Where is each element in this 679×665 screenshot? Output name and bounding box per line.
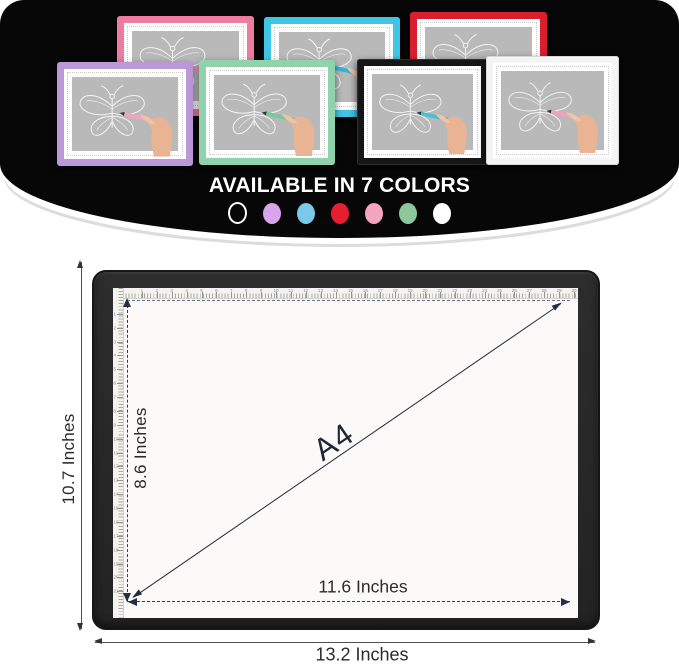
hand-with-pen-icon (544, 85, 606, 158)
light-pad-white (486, 56, 619, 165)
hand-with-pen-icon (414, 88, 475, 158)
pad-mat (206, 67, 328, 158)
pad-screen (501, 71, 604, 150)
pad-screen (214, 75, 320, 150)
hand-with-pen-icon (117, 90, 181, 159)
hero-banner: AVAILABLE IN 7 COLORS (0, 0, 679, 238)
color-swatch-green (399, 203, 417, 224)
color-swatch-purple (263, 203, 281, 224)
pad-mat (493, 63, 612, 158)
color-swatch-white (433, 203, 451, 224)
inner-height-label: 8.6 Inches (131, 407, 151, 488)
ruler-top: 1234567891011121314151617181920212223242… (113, 288, 578, 299)
color-swatches (0, 202, 679, 224)
pad-mat (64, 69, 186, 159)
ruler-left: 123456789101112131415161718192021 (113, 288, 124, 618)
pad-screen (372, 74, 473, 150)
color-swatch-red (331, 203, 349, 224)
hand-with-pen-icon (259, 89, 323, 159)
light-pad-purple (57, 62, 193, 166)
color-swatch-pink (365, 203, 383, 224)
outer-width-label: 13.2 Inches (315, 645, 408, 665)
color-swatch-black (228, 202, 247, 224)
pad-screen (72, 77, 178, 151)
outer-width-arrow (95, 642, 595, 643)
pad-mat (364, 66, 481, 158)
outer-height-arrow (81, 262, 82, 629)
light-pad-black (357, 59, 488, 165)
inner-width-label: 11.6 Inches (318, 577, 407, 598)
product-image: AVAILABLE IN 7 COLORS 123456789101112131… (0, 0, 679, 665)
light-pad-green (199, 60, 335, 165)
arrowhead-right-icon (561, 598, 570, 606)
outer-height-label: 10.7 Inches (59, 413, 79, 504)
color-swatch-blue (297, 203, 315, 224)
arrowhead-up-icon (123, 298, 131, 307)
hero-title: AVAILABLE IN 7 COLORS (0, 174, 679, 198)
